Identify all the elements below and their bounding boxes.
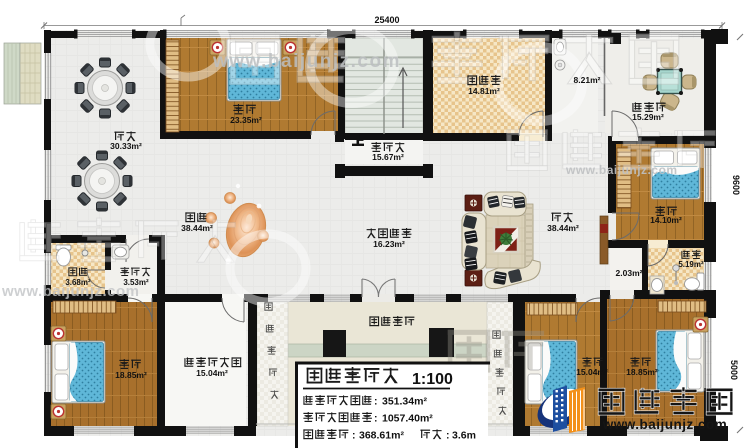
svg-text:www.baijunjz.com: www.baijunjz.com [602,417,728,432]
svg-text::: : [374,413,378,425]
svg-text:15.67m²: 15.67m² [372,152,404,162]
svg-text:18.85m²: 18.85m² [626,367,658,377]
svg-text:23.35m²: 23.35m² [230,115,262,125]
svg-text:3.53m²: 3.53m² [123,278,149,287]
svg-text:www.baijunjz.com: www.baijunjz.com [565,163,678,177]
svg-text:38.44m²: 38.44m² [547,223,579,233]
svg-text:1:100: 1:100 [412,371,453,388]
svg-text:5000: 5000 [729,360,739,380]
svg-text:16.23m²: 16.23m² [373,239,405,249]
svg-text:5.19m²: 5.19m² [678,260,704,269]
svg-text:351.34m²: 351.34m² [382,396,427,408]
svg-text:25400: 25400 [374,15,399,25]
svg-text::: : [446,430,450,442]
svg-text:18.85m²: 18.85m² [115,370,147,380]
svg-text::: : [374,396,378,408]
svg-text:14.10m²: 14.10m² [650,215,682,225]
svg-text:15.04m²: 15.04m² [576,367,608,377]
svg-text:9600: 9600 [731,175,741,195]
svg-text::: : [352,430,356,442]
svg-text:3.6m: 3.6m [452,430,476,442]
svg-text:8.21m²: 8.21m² [574,75,601,85]
svg-text:1057.40m²: 1057.40m² [382,413,433,425]
svg-text:14.81m²: 14.81m² [468,86,500,96]
svg-text:15.29m²: 15.29m² [632,112,664,122]
svg-text:38.44m²: 38.44m² [181,223,213,233]
svg-text:30.33m²: 30.33m² [110,141,142,151]
svg-text:3.68m²: 3.68m² [65,278,91,287]
svg-text:2.03m²: 2.03m² [616,268,643,278]
svg-text:www.baijunjz.com: www.baijunjz.com [212,51,401,72]
svg-text:15.04m²: 15.04m² [196,368,228,378]
svg-text:368.61m²: 368.61m² [359,430,404,442]
